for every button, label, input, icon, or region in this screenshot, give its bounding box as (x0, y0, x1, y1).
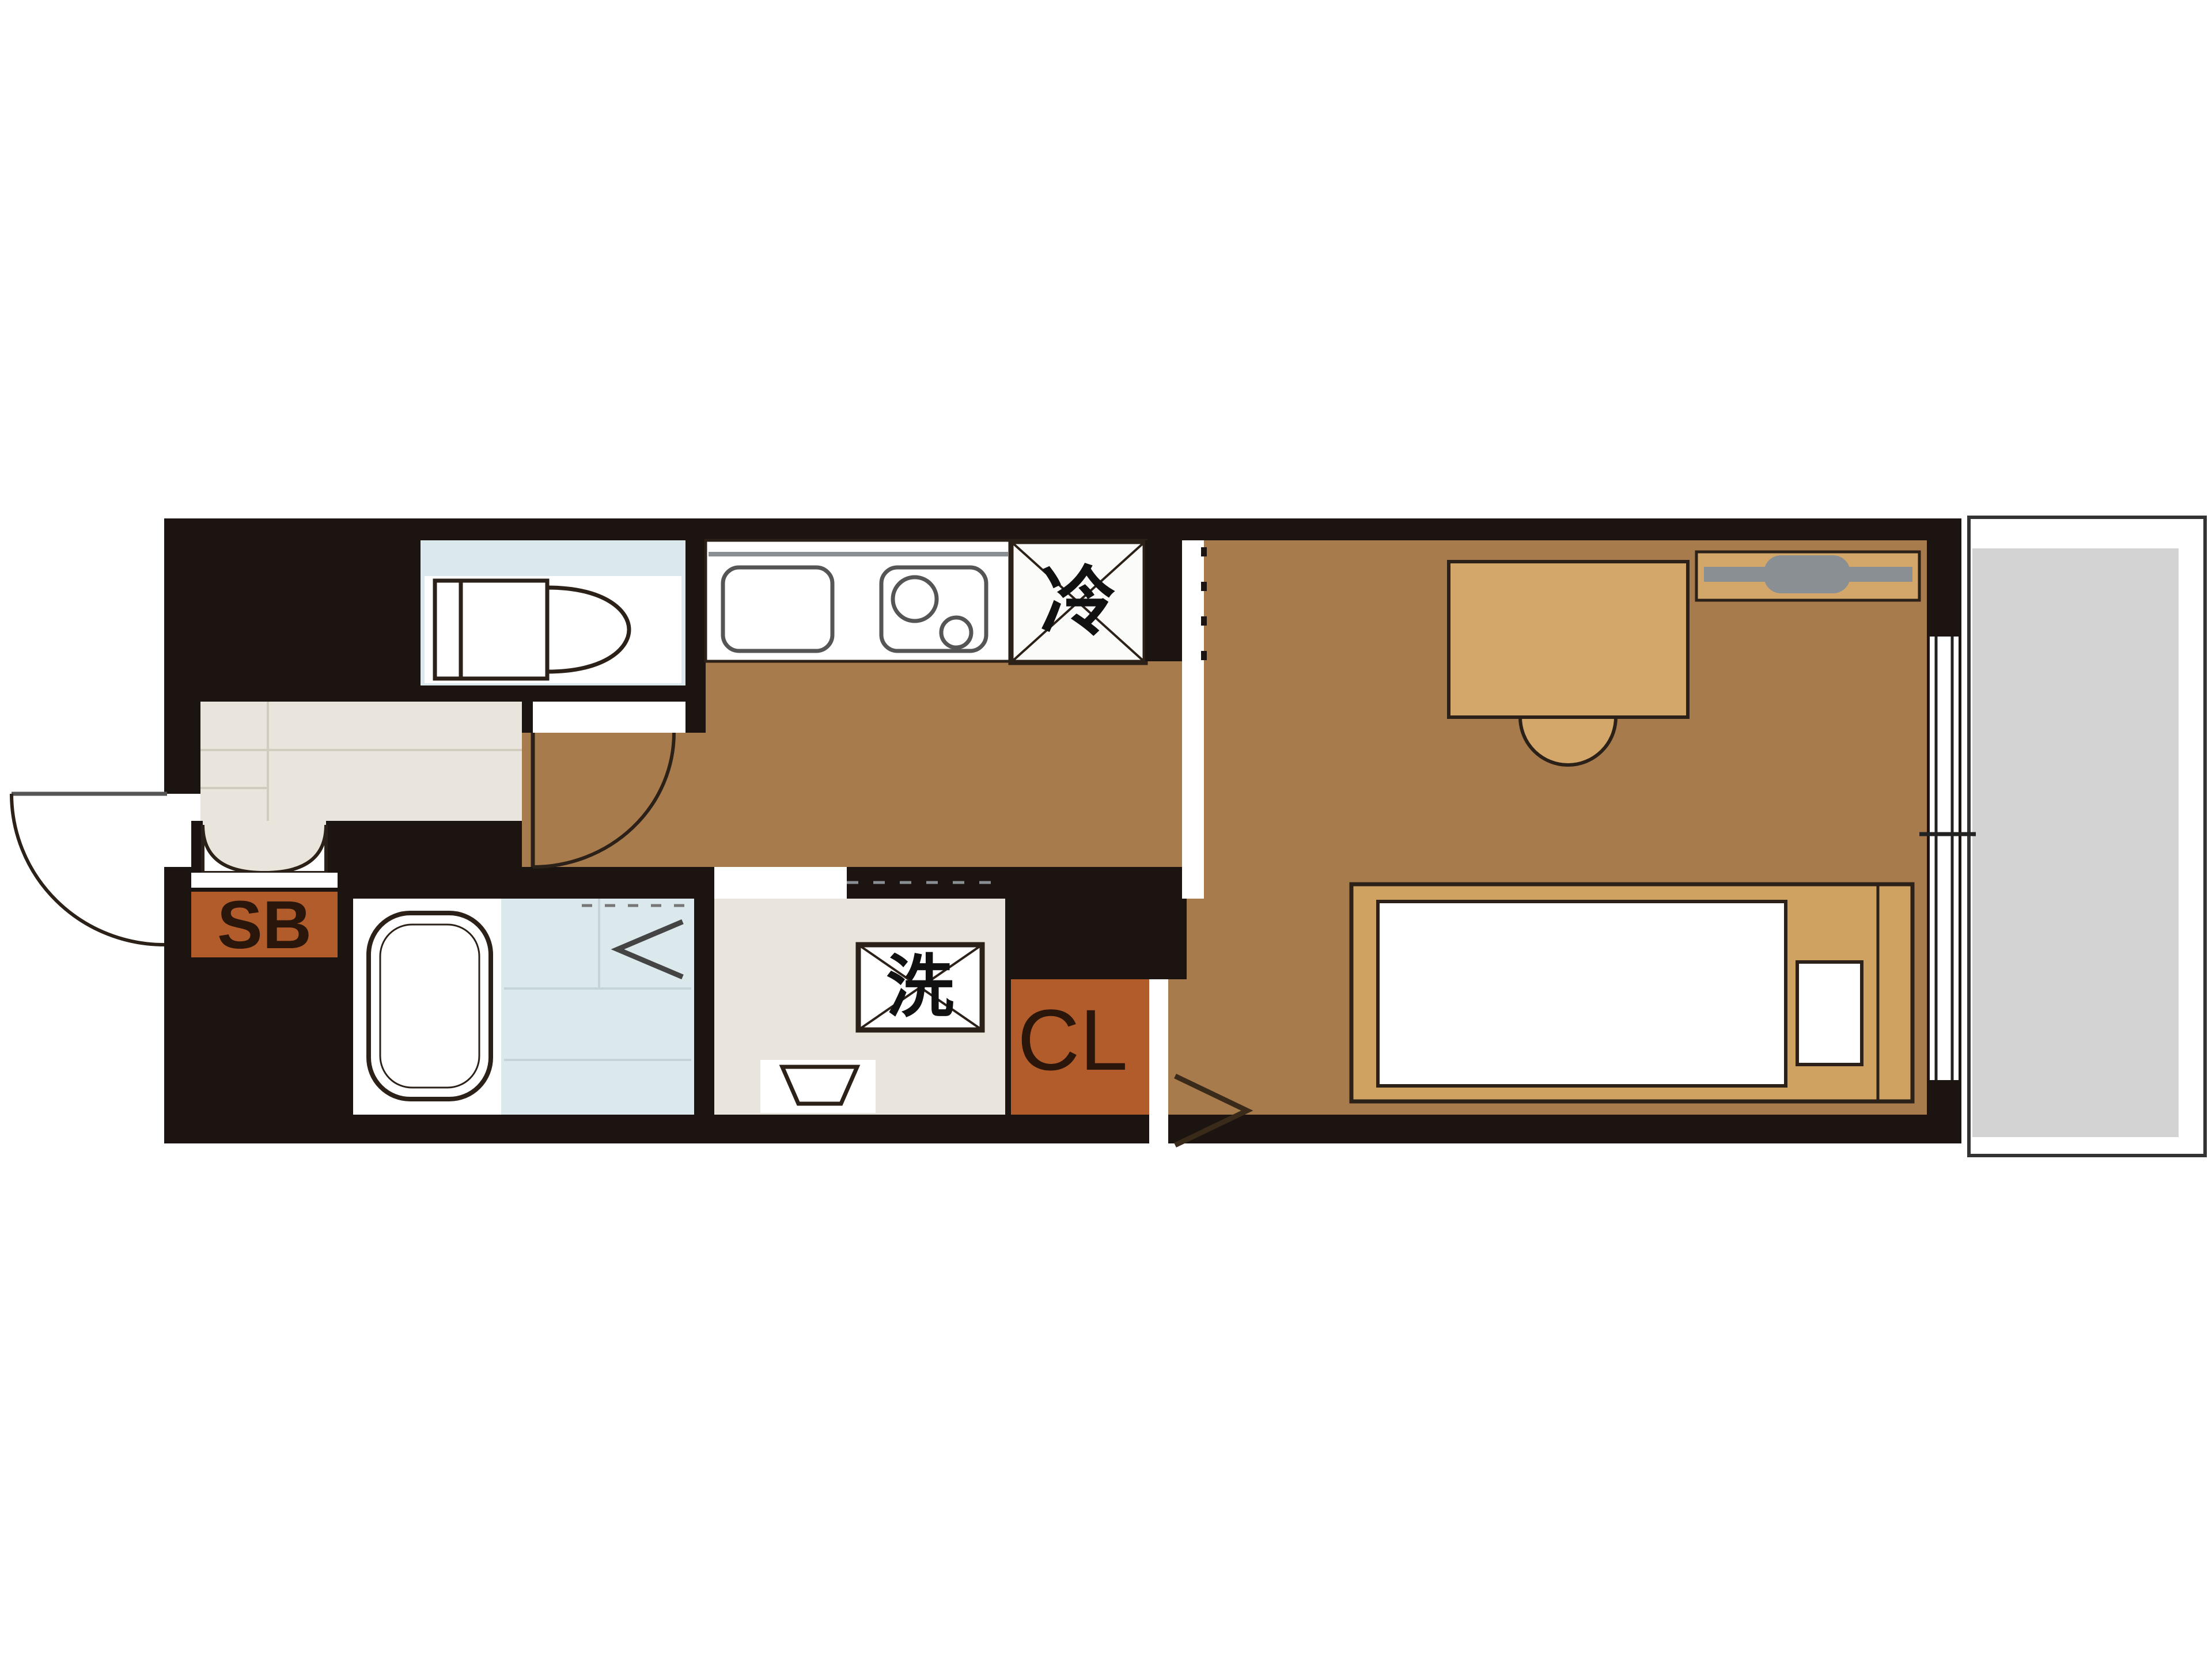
stove-burner-small (941, 618, 971, 647)
bed (1351, 884, 1912, 1101)
bed-mattress (1378, 902, 1786, 1086)
refrigerator-box: 冷 (1011, 541, 1145, 662)
sink-icon (723, 567, 832, 651)
balcony (1969, 517, 2205, 1156)
hall-floor (522, 733, 706, 867)
bathtub-room (353, 899, 501, 1115)
floor-plan: 冷 洗 CL (0, 0, 2212, 1659)
pillow (1797, 962, 1862, 1065)
entrance-genkan (200, 702, 522, 821)
window-opening (1930, 637, 1959, 1080)
entrance-storage-doors (191, 821, 338, 888)
bedroom-floor-patch-2 (1168, 979, 1204, 1115)
kitchen-floor (706, 661, 1182, 867)
desk-top (1449, 562, 1688, 717)
toilet-tank (435, 581, 547, 679)
bathtub-icon (369, 913, 491, 1099)
genkan-floor (200, 702, 522, 821)
floor-plan-page: { "labels": { "shoe_box": "SB", "closet"… (0, 0, 2212, 1659)
shoe-box: SB (191, 887, 338, 963)
balcony-floor (1972, 548, 2179, 1137)
refrigerator-label: 冷 (1040, 560, 1116, 645)
tv-shelf (1696, 552, 1919, 600)
tv-icon (1764, 555, 1850, 593)
stove-icon (881, 567, 986, 651)
storage-threshold (191, 873, 338, 888)
shoe-box-label: SB (217, 887, 312, 963)
toilet-icon (435, 581, 629, 679)
entrance-door-swing-arc (12, 794, 164, 945)
washing-machine-label: 洗 (886, 949, 954, 1025)
washroom: 洗 (714, 867, 1005, 1115)
closet-label: CL (1017, 991, 1128, 1088)
stove-burner-large (893, 577, 937, 621)
toilet-door-opening (533, 702, 685, 733)
washing-machine-box: 洗 (858, 945, 982, 1030)
kitchen-counter (706, 540, 1011, 661)
wash-basin-icon (760, 1060, 876, 1113)
closet-door-opening (1149, 979, 1168, 1146)
door-jamb (1145, 540, 1182, 661)
bathroom (501, 899, 694, 1115)
bedroom-floor-patch-1 (1187, 899, 1204, 979)
washroom-door-opening (714, 867, 847, 899)
sliding-door-opening (1182, 540, 1204, 899)
